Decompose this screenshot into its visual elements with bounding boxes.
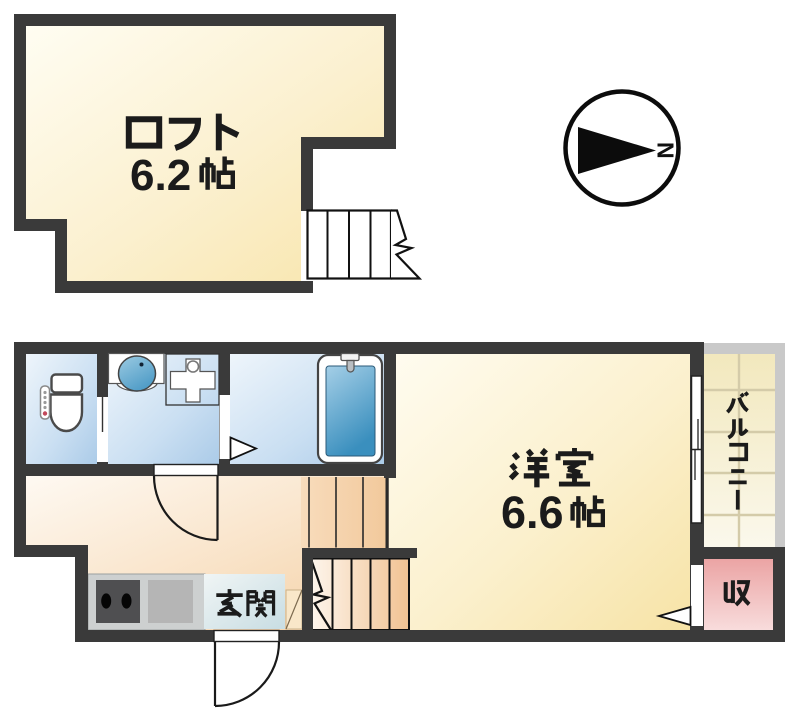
svg-text:6.6: 6.6 — [501, 487, 564, 538]
svg-text:6.2: 6.2 — [130, 151, 191, 200]
svg-text:N: N — [653, 142, 679, 159]
